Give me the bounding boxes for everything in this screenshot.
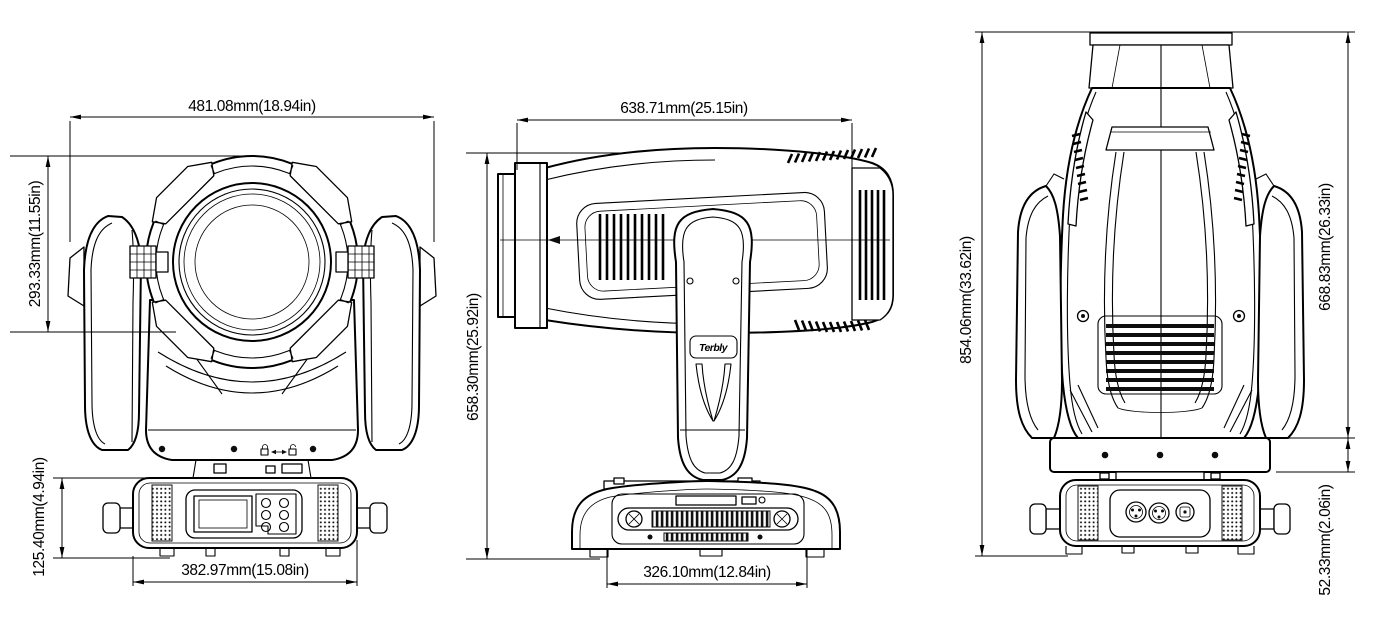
front-lens-bezel — [142, 152, 361, 371]
back-view: 854.06mm(33.62in) 668.83mm(26.33in) 52.3… — [958, 32, 1355, 596]
side-yoke-arm: Terbly — [674, 209, 752, 480]
back-grip-left — [1078, 486, 1098, 540]
power-connector[interactable] — [1176, 503, 1194, 521]
technical-drawing-page: 481.08mm(18.94in) 293.33mm(11.55in) 125.… — [0, 0, 1386, 633]
front-view: 481.08mm(18.94in) 293.33mm(11.55in) 125.… — [10, 98, 436, 586]
back-handle-left — [1030, 504, 1062, 534]
side-view: Terbly — [465, 100, 893, 588]
brand-logo: Terbly — [699, 342, 729, 354]
dim-side-base-width: 326.10mm(12.84in) — [643, 564, 771, 581]
front-grip-left — [152, 485, 172, 541]
dim-front-base-height: 125.40mm(4.94in) — [31, 457, 48, 577]
xlr-connector-2[interactable] — [1149, 503, 1169, 523]
dim-front-overall-width: 481.08mm(18.94in) — [188, 98, 316, 115]
back-yoke-crossbar — [1050, 438, 1270, 480]
front-base — [103, 478, 387, 556]
front-neck — [193, 460, 311, 478]
back-yoke-arm-right — [1256, 174, 1304, 438]
front-display-panel — [186, 490, 302, 538]
dim-back-body-height: 668.83mm(26.33in) — [1317, 183, 1334, 311]
dim-side-overall-height: 658.30mm(25.92in) — [465, 293, 482, 421]
display-screen — [194, 496, 252, 532]
dim-side-head-length: 638.71mm(25.15in) — [620, 100, 748, 117]
side-feet — [590, 549, 824, 557]
dim-front-head-height: 293.33mm(11.55in) — [27, 181, 44, 308]
back-handle-right — [1258, 504, 1290, 534]
side-base — [572, 478, 840, 557]
front-handle-left — [103, 503, 134, 533]
xlr-connector-1[interactable] — [1126, 502, 1146, 522]
back-feet — [1066, 546, 1254, 554]
side-rear-cap — [852, 168, 893, 320]
fixture-dimension-drawing: 481.08mm(18.94in) 293.33mm(11.55in) 125.… — [0, 0, 1386, 633]
front-lens — [173, 183, 331, 341]
back-base — [1030, 480, 1290, 554]
dim-front-base-width: 382.97mm(15.08in) — [181, 562, 309, 579]
back-head — [1060, 33, 1261, 438]
side-lens-barrel — [498, 163, 547, 328]
back-yoke-arm-left — [1016, 174, 1064, 438]
front-handle-right — [356, 503, 387, 533]
dim-back-max-height: 854.06mm(33.62in) — [958, 236, 975, 364]
dim-back-yoke-base-height: 52.33mm(2.06in) — [1317, 484, 1334, 595]
front-grip-right — [318, 485, 338, 541]
back-grip-right — [1222, 486, 1242, 540]
front-feet — [160, 548, 340, 556]
back-connector-panel — [1110, 490, 1210, 537]
